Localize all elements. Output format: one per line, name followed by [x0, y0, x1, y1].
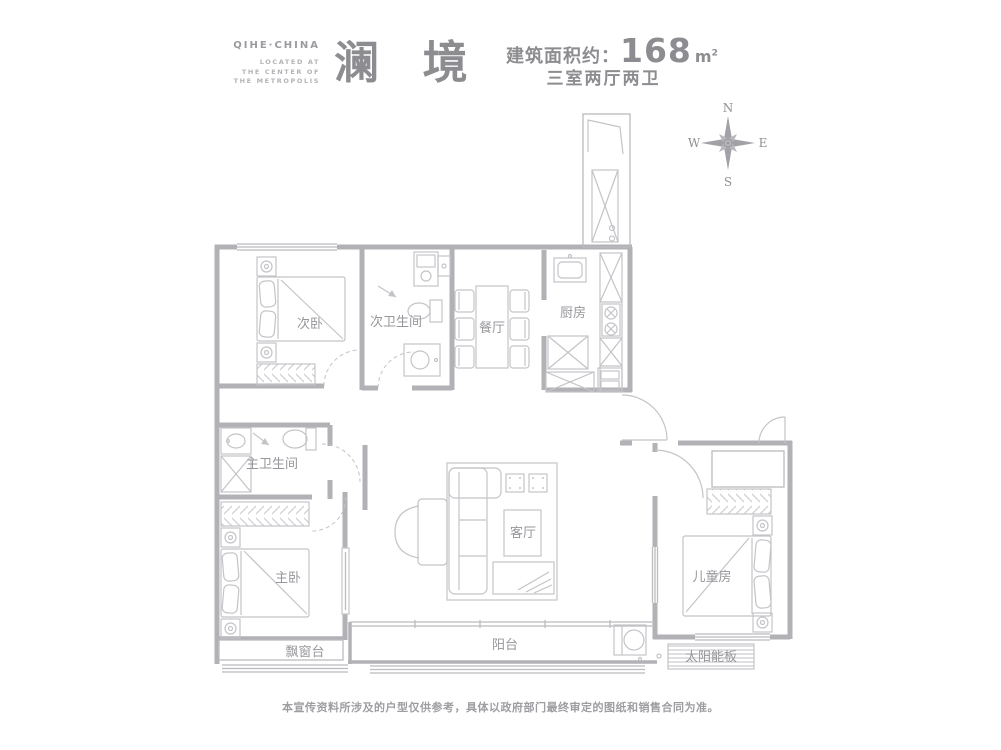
balcony-structure: [219, 620, 655, 673]
room-label-children-room: 儿童房: [692, 569, 731, 585]
walls: [215, 245, 793, 664]
room-label-dining: 餐厅: [479, 320, 505, 336]
wardrobe-icon: [221, 502, 309, 526]
room-label-solar-panel: 太阳能板: [685, 650, 737, 665]
room-label-secondary-bathroom: 次卫生间: [370, 314, 422, 330]
floor-plan-drawing: 次卧 次卫生间 餐厅 厨房 主卫生间 主卧 客厅 儿童房 飘窗台 阳台 太阳能板…: [0, 0, 1001, 750]
compass-icon: N S E W: [688, 101, 768, 189]
room-label-bay-window: 飘窗台: [285, 644, 324, 660]
compass-north: N: [723, 101, 734, 115]
balcony-furniture: [614, 625, 646, 661]
compass-south: S: [724, 175, 732, 189]
utility-shaft: [583, 114, 630, 247]
children-room-furniture: [683, 451, 784, 632]
room-label-secondary-bedroom: 次卧: [297, 316, 323, 332]
kitchen-furniture: [546, 253, 622, 392]
wardrobe-icon: [257, 364, 315, 385]
room-label-living: 客厅: [510, 525, 536, 541]
room-label-master-bathroom: 主卫生间: [246, 457, 298, 472]
compass-east: E: [759, 136, 768, 150]
disclaimer-text: 本宣传资料所涉及的户型仅供参考，具体以政府部门最终审定的图纸和销售合同为准。: [0, 699, 1001, 715]
wardrobe-icon: [707, 489, 771, 514]
compass-west: W: [688, 136, 701, 150]
secondary-bathroom-furniture: [378, 252, 450, 376]
floor-plan-page: QIHE·CHINA LOCATED AT THE CENTER OF THE …: [0, 0, 1001, 750]
master-bedroom-furniture: [221, 502, 309, 638]
room-label-master-bedroom: 主卧: [275, 571, 301, 586]
room-label-kitchen: 厨房: [560, 305, 586, 321]
entry-door-arc: [622, 395, 667, 440]
room-label-balcony: 阳台: [492, 638, 518, 653]
